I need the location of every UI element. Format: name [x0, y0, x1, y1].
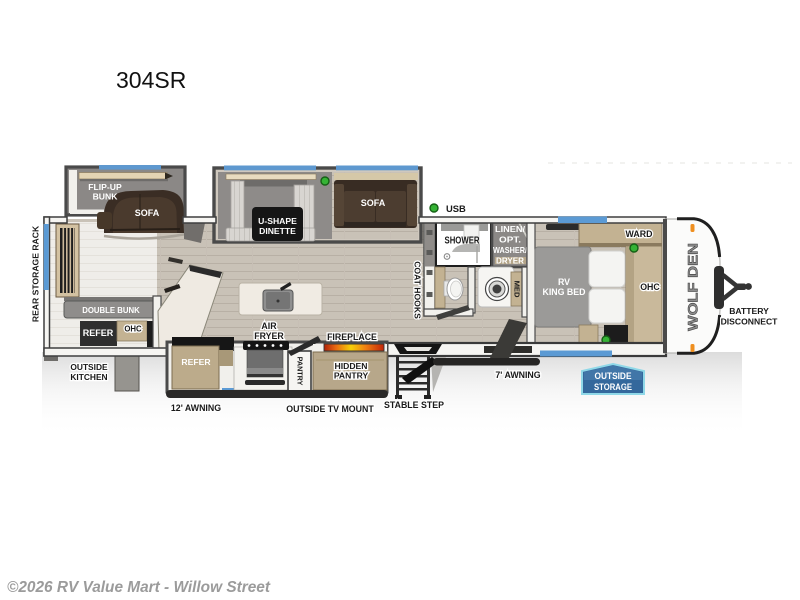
svg-text:REFER: REFER	[181, 357, 211, 367]
svg-text:USB: USB	[446, 203, 466, 214]
svg-text:REFER: REFER	[83, 328, 114, 338]
svg-text:BATTERY: BATTERY	[729, 306, 769, 316]
svg-text:PANTRY: PANTRY	[296, 357, 305, 386]
svg-text:OHC: OHC	[124, 325, 142, 334]
svg-text:304SR: 304SR	[116, 67, 186, 93]
svg-text:FIREPLACE: FIREPLACE	[327, 332, 377, 342]
svg-text:SHOWER: SHOWER	[445, 236, 481, 247]
svg-text:RV: RV	[558, 277, 570, 287]
svg-text:KING BED: KING BED	[542, 287, 585, 297]
svg-text:FLIP-UP: FLIP-UP	[88, 182, 122, 192]
svg-text:U-SHAPE: U-SHAPE	[258, 216, 297, 226]
svg-text:OUTSIDE TV MOUNT: OUTSIDE TV MOUNT	[286, 404, 374, 414]
svg-text:WASHER/: WASHER/	[493, 245, 528, 255]
svg-text:OUTSIDE: OUTSIDE	[595, 371, 632, 381]
svg-text:AIR: AIR	[261, 321, 277, 331]
svg-text:OUTSIDE: OUTSIDE	[70, 362, 108, 372]
svg-text:SOFA: SOFA	[135, 208, 160, 218]
svg-text:REAR STORAGE RACK: REAR STORAGE RACK	[30, 225, 40, 322]
svg-text:WARD: WARD	[626, 229, 653, 239]
svg-text:LINEN/: LINEN/	[495, 224, 526, 234]
svg-text:SOFA: SOFA	[361, 198, 386, 208]
svg-text:OPT.: OPT.	[499, 235, 521, 245]
svg-text:DOUBLE BUNK: DOUBLE BUNK	[82, 306, 140, 315]
svg-text:PANTRY: PANTRY	[334, 371, 369, 381]
svg-text:FRYER: FRYER	[254, 331, 284, 341]
svg-text:STABLE STEP: STABLE STEP	[384, 400, 444, 410]
svg-text:DRYER: DRYER	[496, 256, 524, 266]
svg-text:7' AWNING: 7' AWNING	[495, 370, 540, 380]
svg-text:12' AWNING: 12' AWNING	[171, 403, 221, 413]
svg-text:COAT HOOKS: COAT HOOKS	[413, 261, 423, 319]
svg-text:DISCONNECT: DISCONNECT	[721, 317, 779, 327]
svg-text:WOLF DEN: WOLF DEN	[686, 243, 701, 331]
svg-text:KITCHEN: KITCHEN	[70, 372, 107, 382]
svg-text:OHC: OHC	[640, 282, 660, 292]
svg-text:HIDDEN: HIDDEN	[335, 361, 368, 371]
svg-text:BUNK: BUNK	[93, 192, 119, 202]
svg-text:©2026 RV Value Mart - Willow S: ©2026 RV Value Mart - Willow Street	[7, 579, 271, 596]
svg-text:DINETTE: DINETTE	[259, 226, 296, 236]
svg-text:STORAGE: STORAGE	[594, 382, 632, 392]
svg-text:MED: MED	[513, 281, 522, 298]
